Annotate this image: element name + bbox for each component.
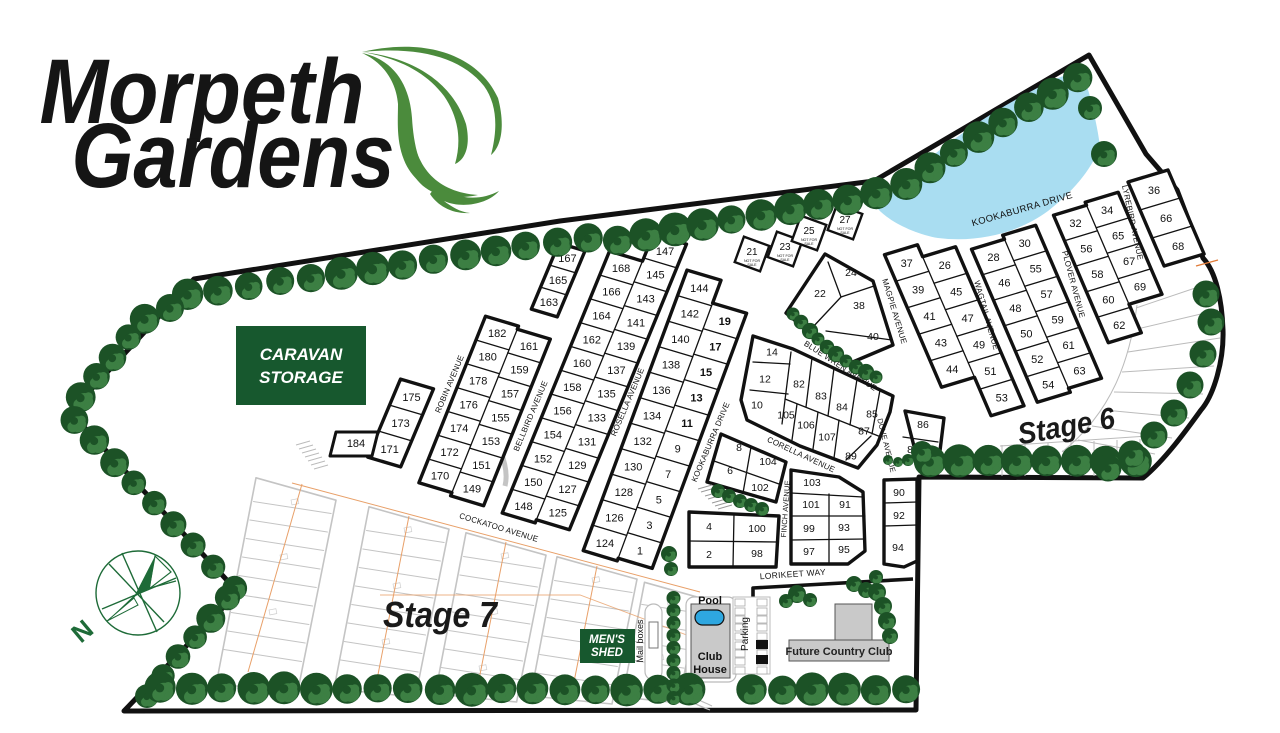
svg-text:135: 135 [597,389,615,401]
svg-text:132: 132 [634,436,652,448]
svg-text:136: 136 [652,385,670,397]
svg-text:59: 59 [1051,314,1063,326]
svg-text:92: 92 [893,510,905,522]
svg-text:House: House [693,664,727,676]
svg-text:155: 155 [491,412,509,424]
svg-text:140: 140 [671,334,689,346]
svg-text:137: 137 [607,365,625,377]
svg-text:22: 22 [814,288,826,300]
svg-text:148: 148 [514,501,532,513]
svg-text:21: 21 [746,247,758,258]
svg-text:6: 6 [727,465,733,477]
svg-text:94: 94 [892,542,904,554]
svg-text:14: 14 [766,347,778,359]
svg-text:13: 13 [690,392,702,404]
svg-text:87: 87 [858,426,870,438]
svg-text:90: 90 [893,487,905,499]
svg-text:66: 66 [1160,213,1172,225]
svg-text:67: 67 [1123,256,1135,268]
svg-text:54: 54 [1042,379,1054,391]
svg-text:102: 102 [751,482,769,494]
svg-text:68: 68 [1172,241,1184,253]
svg-text:101: 101 [802,499,820,511]
svg-text:STORAGE: STORAGE [259,368,343,387]
svg-text:69: 69 [1134,281,1146,293]
svg-text:139: 139 [617,341,635,353]
svg-text:127: 127 [558,484,576,496]
svg-text:176: 176 [460,399,478,411]
svg-text:51: 51 [984,366,996,378]
svg-text:Mail boxes: Mail boxes [635,619,645,663]
svg-text:63: 63 [1073,365,1085,377]
svg-text:182: 182 [488,328,506,340]
svg-text:163: 163 [540,297,558,309]
svg-text:SALE: SALE [804,242,814,246]
svg-text:170: 170 [431,471,449,483]
svg-text:SALE: SALE [840,231,850,235]
svg-text:Future Country Club: Future Country Club [786,646,893,658]
svg-text:MEN'S: MEN'S [589,634,625,646]
svg-text:60: 60 [1102,294,1114,306]
svg-text:125: 125 [549,508,567,520]
svg-text:145: 145 [646,270,664,282]
svg-text:28: 28 [987,252,999,264]
svg-text:38: 38 [853,300,865,312]
svg-text:SALE: SALE [780,258,790,262]
svg-text:158: 158 [563,382,581,394]
svg-text:49: 49 [973,339,985,351]
svg-text:1: 1 [637,545,643,557]
svg-text:45: 45 [950,286,962,298]
svg-text:172: 172 [440,447,458,459]
svg-text:171: 171 [381,444,399,456]
svg-text:143: 143 [636,294,654,306]
svg-text:Parking: Parking [740,617,751,651]
svg-text:65: 65 [1112,230,1124,242]
svg-text:CARAVAN: CARAVAN [260,345,343,364]
svg-text:SHED: SHED [591,647,623,659]
svg-text:34: 34 [1101,205,1113,217]
svg-text:105: 105 [777,410,795,422]
svg-text:82: 82 [793,379,805,391]
svg-text:7: 7 [665,469,671,481]
svg-text:106: 106 [797,420,815,432]
svg-text:144: 144 [690,283,708,295]
svg-text:58: 58 [1091,269,1103,281]
svg-text:128: 128 [615,487,633,499]
svg-text:12: 12 [759,374,771,386]
svg-text:104: 104 [759,456,777,468]
svg-text:55: 55 [1030,263,1042,275]
svg-text:39: 39 [912,284,924,296]
svg-text:91: 91 [839,499,851,511]
svg-text:17: 17 [709,341,721,353]
svg-text:131: 131 [578,436,596,448]
svg-text:25: 25 [803,226,815,237]
svg-text:10: 10 [751,400,763,412]
svg-text:147: 147 [656,246,674,258]
svg-text:175: 175 [402,392,420,404]
svg-text:46: 46 [998,277,1010,289]
svg-text:162: 162 [583,334,601,346]
svg-text:156: 156 [553,406,571,418]
svg-text:103: 103 [803,477,821,489]
svg-text:40: 40 [867,331,879,343]
svg-text:164: 164 [592,311,610,323]
svg-text:130: 130 [624,461,642,473]
svg-text:Pool: Pool [698,595,722,607]
svg-text:19: 19 [719,316,731,328]
svg-text:57: 57 [1040,289,1052,301]
svg-text:48: 48 [1009,303,1021,315]
svg-text:3: 3 [646,520,652,532]
svg-text:Club: Club [698,651,723,663]
svg-text:61: 61 [1062,340,1074,352]
svg-text:151: 151 [472,460,490,472]
svg-text:62: 62 [1113,320,1125,332]
svg-text:53: 53 [996,392,1008,404]
svg-text:184: 184 [347,438,365,450]
svg-text:52: 52 [1031,354,1043,366]
svg-text:149: 149 [463,484,481,496]
svg-text:100: 100 [748,523,766,535]
svg-text:23: 23 [779,242,791,253]
svg-text:9: 9 [675,443,681,455]
svg-text:126: 126 [605,512,623,524]
svg-text:95: 95 [838,544,850,556]
svg-text:99: 99 [803,523,815,535]
svg-text:141: 141 [627,317,645,329]
svg-text:160: 160 [573,358,591,370]
svg-text:27: 27 [839,215,851,226]
svg-text:86: 86 [917,419,929,431]
svg-text:138: 138 [662,359,680,371]
svg-text:153: 153 [482,436,500,448]
svg-text:178: 178 [469,376,487,388]
svg-text:5: 5 [656,494,662,506]
svg-text:157: 157 [501,389,519,401]
svg-text:30: 30 [1019,238,1031,250]
svg-text:134: 134 [643,410,661,422]
svg-text:173: 173 [391,418,409,430]
svg-text:50: 50 [1020,328,1032,340]
svg-text:133: 133 [588,413,606,425]
svg-text:161: 161 [520,341,538,353]
svg-text:180: 180 [479,352,497,364]
svg-text:26: 26 [939,260,951,272]
svg-text:2: 2 [706,549,712,561]
svg-text:43: 43 [935,337,947,349]
svg-text:152: 152 [534,453,552,465]
svg-text:24: 24 [845,267,857,279]
svg-text:83: 83 [815,391,827,403]
svg-text:37: 37 [901,258,913,270]
svg-text:41: 41 [923,311,935,323]
svg-text:44: 44 [946,364,958,376]
svg-text:98: 98 [751,548,763,560]
svg-text:89: 89 [845,451,857,463]
svg-text:84: 84 [836,402,848,414]
svg-text:93: 93 [838,522,850,534]
svg-text:150: 150 [524,477,542,489]
svg-text:15: 15 [700,367,712,379]
svg-text:SALE: SALE [747,263,757,267]
svg-text:56: 56 [1080,243,1092,255]
svg-text:107: 107 [818,432,836,444]
svg-text:166: 166 [602,287,620,299]
svg-text:154: 154 [544,430,562,442]
svg-text:32: 32 [1069,218,1081,230]
svg-text:Gardens: Gardens [72,105,395,207]
svg-text:159: 159 [510,365,528,377]
svg-text:168: 168 [612,263,630,275]
svg-text:97: 97 [803,546,815,558]
svg-text:11: 11 [681,418,693,430]
svg-text:8: 8 [736,442,742,454]
svg-text:129: 129 [568,460,586,472]
svg-text:Stage 7: Stage 7 [383,594,499,635]
svg-text:142: 142 [681,308,699,320]
svg-text:36: 36 [1148,185,1160,197]
svg-text:124: 124 [596,538,614,550]
svg-text:4: 4 [706,521,712,533]
svg-text:174: 174 [450,423,468,435]
svg-text:165: 165 [549,275,567,287]
svg-text:47: 47 [961,313,973,325]
